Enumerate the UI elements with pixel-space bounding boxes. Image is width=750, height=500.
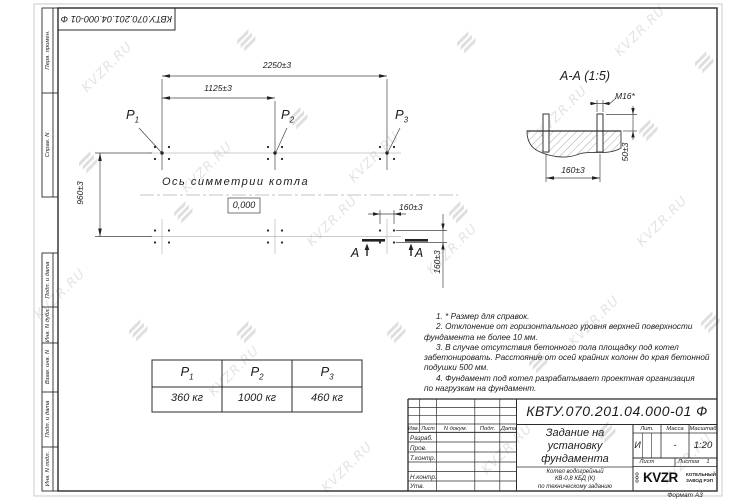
dim-total-width: 2250±3 xyxy=(237,60,317,70)
table-value-p3: 460 кг xyxy=(292,392,362,404)
side-stamp-inv-n-podl: Инв. N подл. xyxy=(43,447,53,491)
sheets-label: Листов xyxy=(678,459,699,465)
note-line: 4. Фундамент под котел разрабатывает про… xyxy=(424,374,716,384)
table-value-p1: 360 кг xyxy=(152,392,222,404)
side-stamp-inv-n-dubl: Инв. N дубл. xyxy=(43,307,53,343)
side-stamp-vzam-inv-n: Взам. инв. N xyxy=(43,342,53,392)
company-prefix: ООО xyxy=(635,470,640,486)
scale-header: Масштаб xyxy=(689,426,717,432)
object-line-3: по техническому заданию xyxy=(517,484,633,490)
section-letter-left: А xyxy=(348,246,362,260)
rev-header-list: Лист xyxy=(419,426,437,432)
dim-bolt-spacing-x: 160±3 xyxy=(399,202,423,212)
lit-header: Лит. xyxy=(633,426,661,432)
section-dim-width: 160±3 xyxy=(545,165,601,175)
company-logo-kvzr: KVZR xyxy=(643,470,678,485)
load-point-label-p2: P2 xyxy=(281,107,294,122)
mass-value: - xyxy=(661,440,689,450)
note-line: по нагрузкам на фундамент. xyxy=(424,384,716,394)
side-stamp-podp-i-data-1: Подп. и дата xyxy=(43,253,53,307)
row-label-utv: Утв. xyxy=(410,483,424,490)
company-sub-line-2: ЗАВОД РЭП xyxy=(686,478,713,483)
note-line: подушки 500 мм. xyxy=(424,363,716,373)
drawing-sheet: KVZR.RUKVZR.RUKVZR.RUKVZR.RUKVZR.RUKVZR.… xyxy=(0,0,750,500)
scale-value: 1:20 xyxy=(689,440,717,451)
dim-bolt-spacing-y: 160±3 xyxy=(432,240,442,284)
section-letter-right: А xyxy=(412,246,426,260)
side-stamp-sprav-n: Справ. N xyxy=(43,93,53,197)
corner-stamp-doc-number: КВТУ.070.201.04.000-01 Ф xyxy=(58,8,175,29)
lit-value: И xyxy=(633,440,642,450)
object-line-2: КВ-0,8 КБД (К) xyxy=(517,476,633,482)
row-label-nkontr: Н.контр. xyxy=(410,474,437,481)
rev-header-podp: Подп. xyxy=(475,426,500,432)
concrete-hatch xyxy=(527,131,621,157)
dim-half-width: 1125±3 xyxy=(183,83,253,93)
row-label-prov: Пров. xyxy=(410,445,427,452)
row-label-razrab: Разраб. xyxy=(410,435,433,442)
note-line: 3. В случае отсутствия бетонного пола пл… xyxy=(424,343,716,353)
side-stamp-podp-i-data-2: Подп. и дата xyxy=(43,391,53,447)
anchor-bolt-right xyxy=(597,114,603,152)
anchor-bolt-left xyxy=(543,114,549,152)
thread-callout: М16* xyxy=(615,91,635,101)
table-value-p2: 1000 кг xyxy=(222,392,292,404)
note-line: забетонировать. Расстояние от осей крайн… xyxy=(424,353,716,363)
rev-header-data: Дата xyxy=(500,426,517,432)
table-header-p2: P2 xyxy=(222,364,292,379)
title-block-doc-number: КВТУ.070.201.04.000-01 Ф xyxy=(517,401,717,422)
doc-title-line-1: Задание на xyxy=(517,427,633,439)
notes-block: 1. * Размер для справок. 2. Отклонение о… xyxy=(424,312,716,394)
sheets-value: 1 xyxy=(702,459,714,465)
symmetry-axis-label: Ось симметрии котла xyxy=(162,176,309,188)
row-label-tkontr: Т.контр. xyxy=(410,455,435,462)
object-line-1: Котел водогрейный xyxy=(517,469,633,475)
note-line: фундамента не более 10 мм. xyxy=(424,333,716,343)
load-point-label-p1: P1 xyxy=(126,107,139,122)
format-label: Формат А3 xyxy=(655,492,715,499)
section-title: А-А (1:5) xyxy=(545,69,625,83)
note-line: 2. Отклонение от горизонтального уровня … xyxy=(424,322,716,332)
side-stamp-perv-primen: Перв. примен. xyxy=(43,7,53,93)
table-header-p3: P3 xyxy=(292,364,362,379)
sheet-label: Лист xyxy=(633,459,661,465)
doc-title-line-2: установку xyxy=(517,440,633,452)
note-line: 1. * Размер для справок. xyxy=(424,312,716,322)
doc-title-line-3: фундамента xyxy=(517,453,633,465)
mass-header: Масса xyxy=(661,426,689,432)
dim-height: 960±3 xyxy=(75,171,85,215)
table-header-p1: P1 xyxy=(152,364,222,379)
section-dim-height: 50±3 xyxy=(620,131,630,173)
load-point-label-p3: P3 xyxy=(395,107,408,122)
rev-header-n-dokum: N докум. xyxy=(436,426,475,432)
company-sub-line-1: КОТЕЛЬНЫЙ xyxy=(686,472,716,477)
level-mark: 0,000 xyxy=(228,200,260,210)
